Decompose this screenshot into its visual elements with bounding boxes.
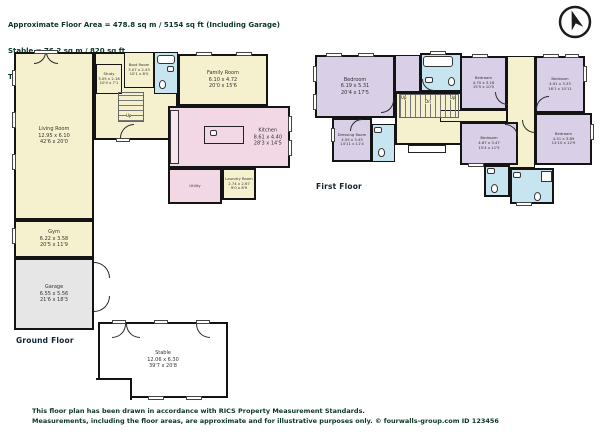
room-dim-imperial: 10'1 x 8'0: [128, 72, 150, 77]
window: [565, 54, 579, 58]
window: [112, 320, 126, 324]
room-label: Bedroom 4.51 x 3.89 14'10 x 12'9: [552, 132, 576, 147]
stairs-dn-label: Dn: [425, 100, 431, 104]
window: [288, 140, 292, 156]
room-label: Garage 6.55 x 5.56 21'6 x 18'3: [40, 284, 68, 304]
bathtub-icon: [423, 56, 453, 67]
french-door-opening: [34, 50, 58, 54]
toilet-icon: [159, 80, 166, 89]
ground-floor-label: Ground Floor: [16, 336, 74, 345]
room-dim-imperial: 28'3 x 14'5: [254, 140, 282, 147]
window: [12, 154, 16, 170]
window: [288, 116, 292, 132]
sink-icon: [513, 172, 521, 178]
room-label: Kitchen 8.61 x 4.40 28'3 x 14'5: [254, 127, 282, 147]
room-dim-imperial: 15'4 x 11'5: [478, 146, 500, 151]
room-label: Gym 6.22 x 3.58 20'5 x 11'9: [40, 229, 68, 249]
room-wardrobe-lobby: [395, 55, 420, 92]
window: [154, 320, 168, 324]
window: [12, 228, 16, 244]
summary-line-total-area: Approximate Floor Area = 478.8 sq m / 51…: [8, 21, 280, 30]
first-floor-label: First Floor: [316, 182, 362, 191]
room-name-label: Family Room: [207, 70, 239, 77]
window: [430, 51, 446, 55]
room-gym: Gym 6.22 x 3.58 20'5 x 11'9: [14, 220, 94, 258]
room-name-label: Utility: [189, 184, 200, 189]
room-name-label: Living Room: [38, 126, 70, 133]
room-label: Utility: [189, 184, 200, 189]
room-label: Boot Room 3.07 x 2.43 10'1 x 8'0: [128, 63, 150, 78]
sink-icon: [374, 127, 382, 133]
room-family-room: Family Room 6.10 x 4.72 20'0 x 15'6: [178, 54, 268, 106]
room-dim-imperial: 20'4 x 17'5: [341, 90, 369, 97]
window: [196, 320, 210, 324]
room-living-room: Living Room 12.95 x 6.10 42'6 x 20'0: [14, 52, 94, 220]
window: [472, 54, 488, 58]
room-dim-imperial: 9'0 x 8'9: [225, 186, 253, 191]
window: [148, 396, 164, 400]
window: [196, 52, 212, 56]
room-dim-imperial: 14'11 x 11'4: [338, 142, 367, 147]
bathtub-icon: [157, 55, 175, 64]
footer-disclaimer: This floor plan has been drawn in accord…: [32, 407, 577, 427]
room-bedroom-4: Bedroom 4.51 x 3.89 14'10 x 12'9: [535, 113, 592, 165]
room-dim-imperial: 14'10 x 12'9: [552, 141, 576, 146]
room-dim-imperial: 16'1 x 10'11: [548, 87, 572, 92]
sink-icon: [425, 77, 433, 83]
window: [358, 53, 374, 57]
window: [236, 52, 252, 56]
room-study: Study 3.05 x 2.16 10'0 x 7'1: [96, 64, 122, 94]
room-label: Bedroom 6.19 x 5.31 20'4 x 17'5: [341, 77, 369, 97]
toilet-icon: [491, 184, 498, 193]
room-label: Dressing Room 4.55 x 3.45 14'11 x 11'4: [338, 133, 367, 148]
toilet-icon: [534, 192, 541, 201]
floorplan-page: Approximate Floor Area = 478.8 sq m / 51…: [0, 0, 600, 434]
window: [583, 66, 587, 82]
entrance-door-opening: [116, 138, 130, 142]
window: [590, 124, 594, 140]
room-label: Stable 12.06 x 6.30 39'7 x 20'8: [147, 350, 179, 370]
room-dim-imperial: 10'0 x 7'1: [98, 81, 120, 86]
room-garage: Garage 6.55 x 5.56 21'6 x 18'3: [14, 258, 94, 330]
compass-north-icon: [556, 3, 594, 41]
disclaimer-line-2: Measurements, including the floor areas,…: [32, 417, 577, 427]
stairs-up-label: Up: [126, 114, 131, 118]
toilet-icon: [448, 77, 455, 86]
window: [331, 128, 335, 142]
room-label: Bedroom 4.67 x 3.47 15'4 x 11'5: [478, 136, 500, 151]
sink-icon: [210, 130, 217, 136]
toilet-icon: [378, 148, 385, 157]
bay-window: [408, 145, 446, 153]
room-label: Laundry Room 2.74 x 2.67 9'0 x 8'9: [225, 177, 253, 192]
room-dim-metric: 6.19 x 5.31: [341, 83, 369, 90]
room-label: Family Room 6.10 x 4.72 20'0 x 15'6: [207, 70, 239, 90]
sink-icon: [487, 168, 495, 174]
window: [313, 94, 317, 110]
room-dim-imperial: 39'7 x 20'8: [147, 363, 179, 370]
room-label: Bedroom 4.91 x 3.33 16'1 x 10'11: [548, 77, 572, 92]
door-arc: [94, 296, 110, 312]
room-label: Living Room 12.95 x 6.10 42'6 x 20'0: [38, 126, 70, 146]
stairs-up-label: Up: [401, 96, 406, 100]
sink-icon: [167, 66, 174, 72]
door-arc: [94, 262, 110, 278]
window: [313, 66, 317, 82]
window: [516, 202, 532, 206]
room-dim-imperial: 42'6 x 20'0: [38, 139, 70, 146]
shower-icon: [541, 171, 552, 182]
room-dim-imperial: 21'6 x 18'3: [40, 297, 68, 304]
window: [12, 70, 16, 86]
room-laundry-room: Laundry Room 2.74 x 2.67 9'0 x 8'9: [222, 168, 256, 200]
room-dim-imperial: 20'0 x 15'6: [207, 83, 239, 90]
kitchen-counter: [170, 110, 179, 164]
window: [468, 163, 484, 167]
stairs-up-label: Up: [450, 96, 455, 100]
window: [186, 396, 202, 400]
room-dim-imperial: 15'5 x 10'5: [473, 85, 495, 90]
window: [543, 54, 559, 58]
disclaimer-line-1: This floor plan has been drawn in accord…: [32, 407, 577, 417]
room-boot-room: Boot Room 3.07 x 2.43 10'1 x 8'0: [124, 52, 154, 88]
stable-notch: [96, 378, 132, 400]
room-label: Study 3.05 x 2.16 10'0 x 7'1: [98, 72, 120, 87]
window: [326, 53, 342, 57]
room-utility: Utility: [168, 168, 222, 204]
room-dim-imperial: 20'5 x 11'9: [40, 242, 68, 249]
room-label: Bedroom 4.70 x 3.18 15'5 x 10'5: [473, 76, 495, 91]
window: [12, 112, 16, 128]
